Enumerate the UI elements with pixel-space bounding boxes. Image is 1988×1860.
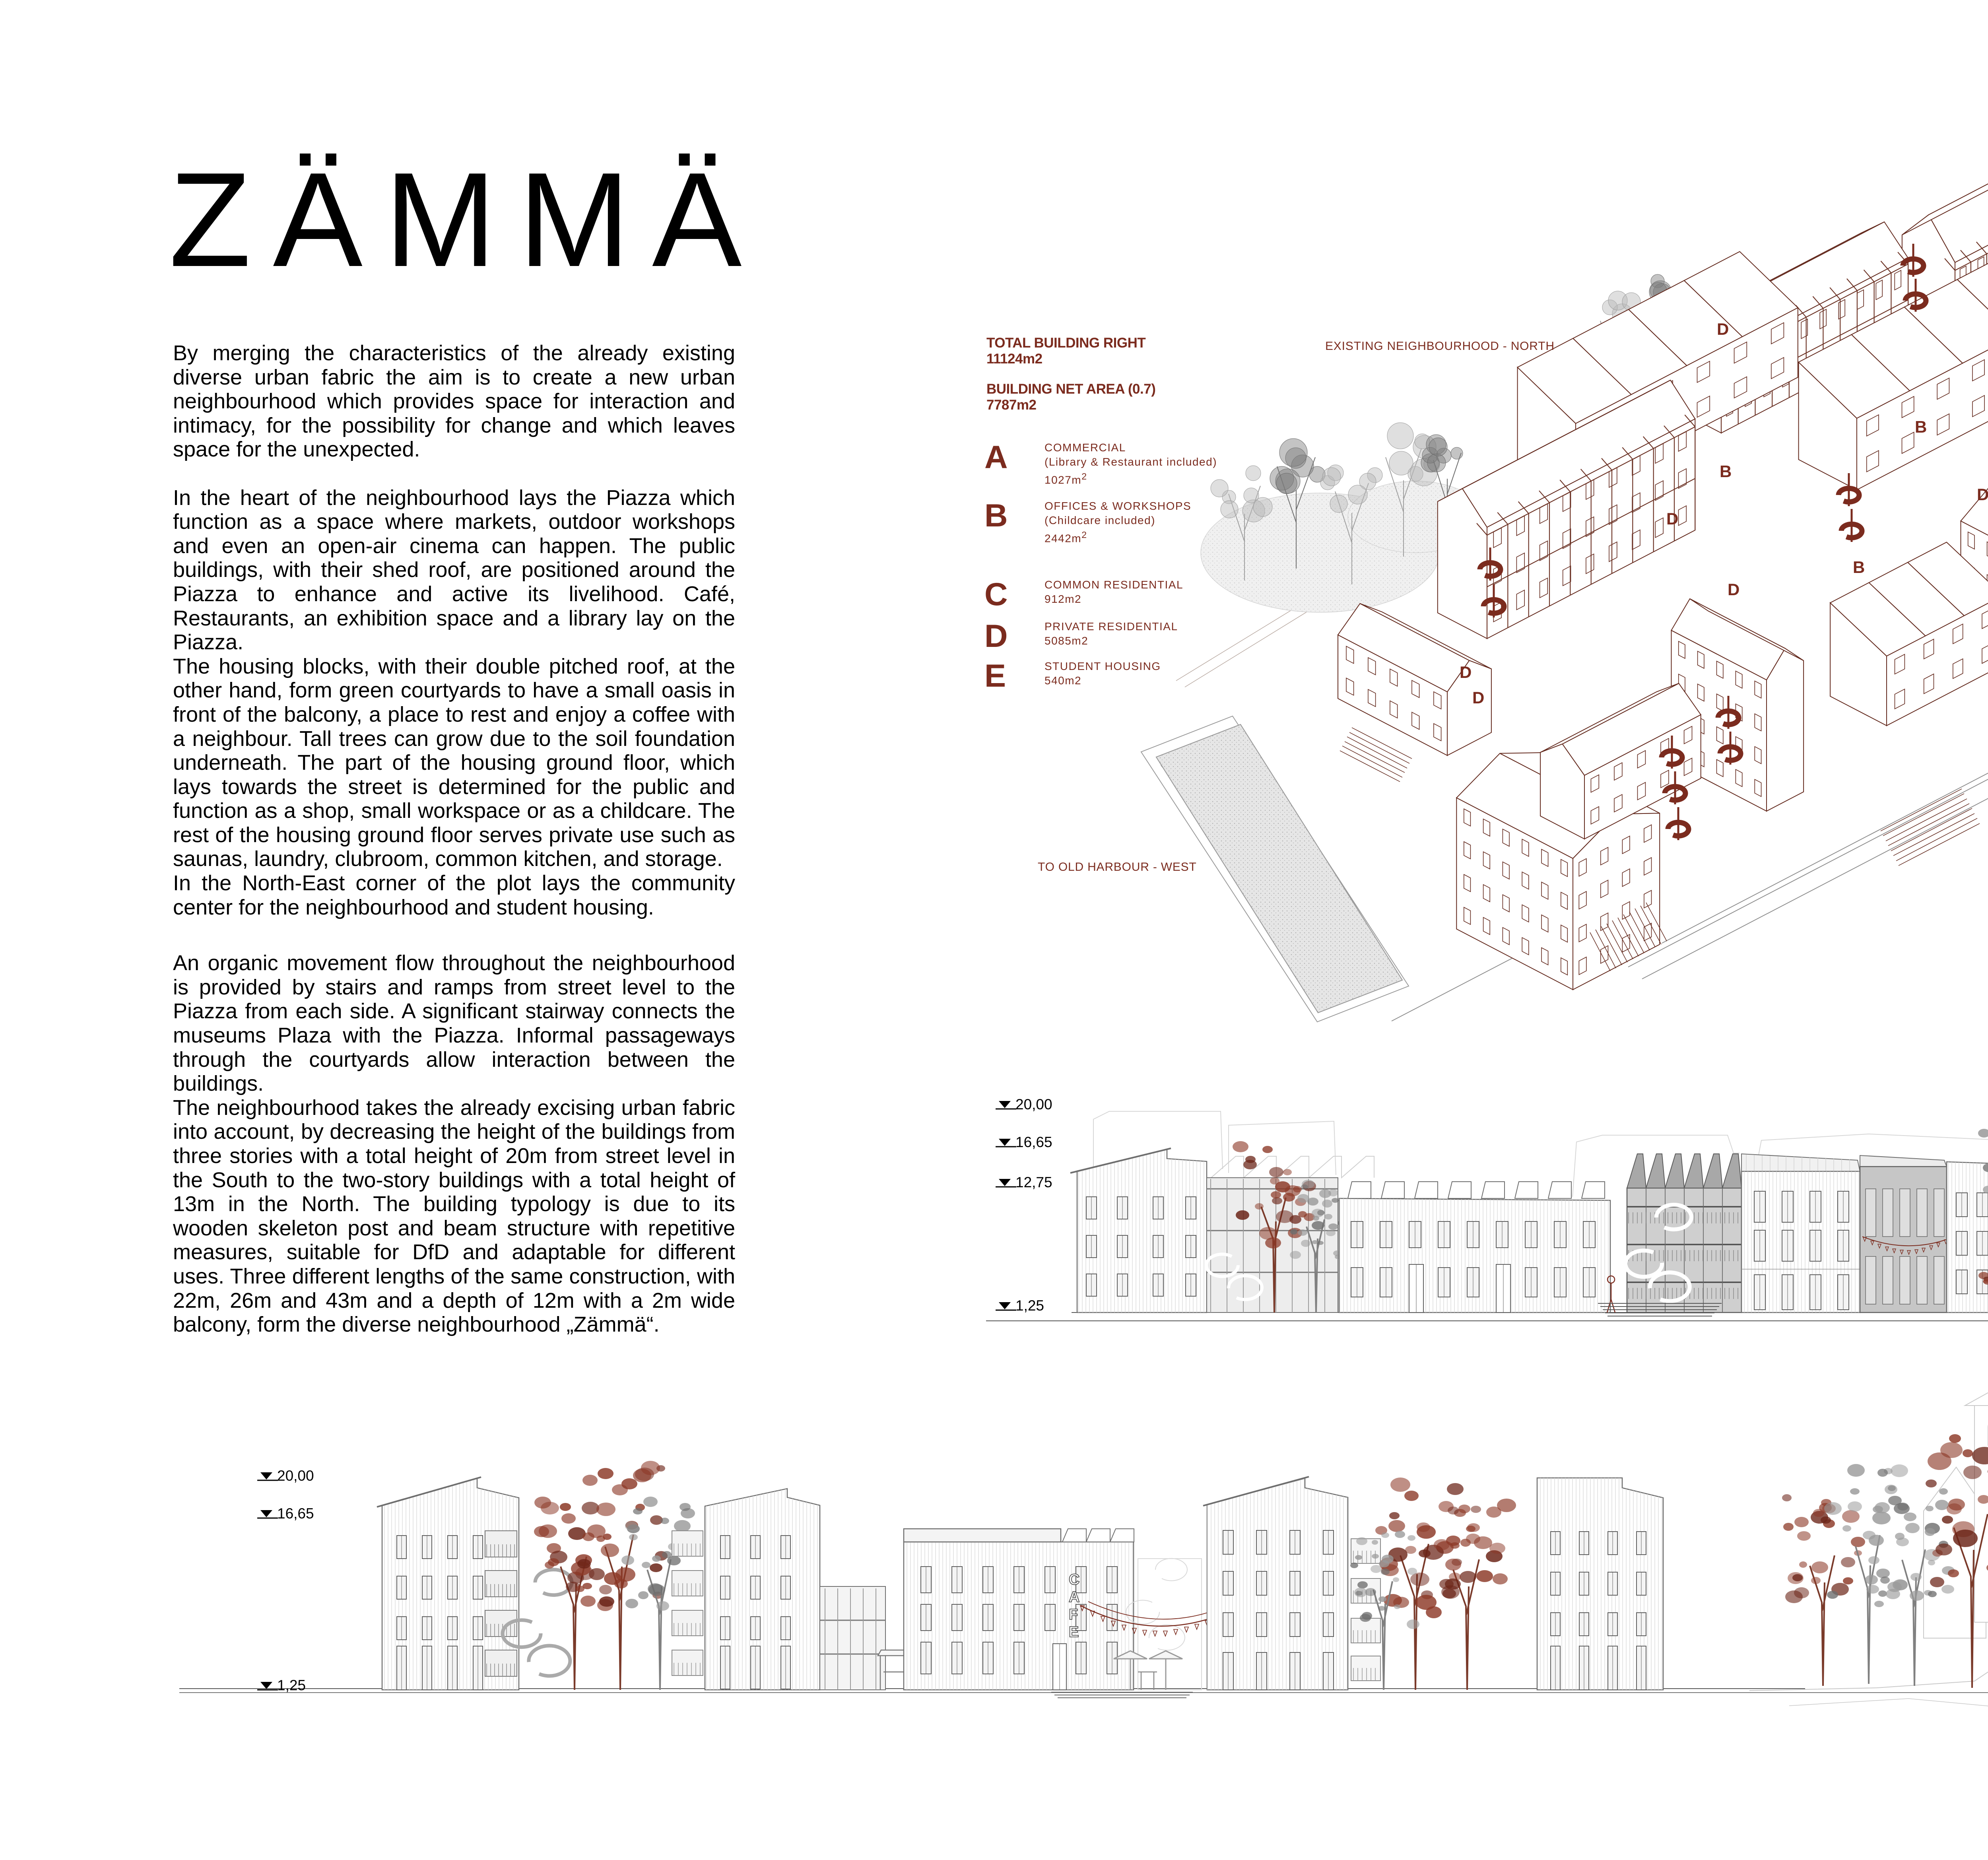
svg-text:D: D	[1472, 688, 1484, 707]
svg-text:B: B	[1720, 462, 1732, 481]
svg-text:D: D	[1977, 485, 1988, 504]
svg-text:20,00: 20,00	[277, 1468, 314, 1484]
svg-text:A: A	[1069, 1589, 1079, 1606]
svg-text:E: E	[1069, 1624, 1079, 1641]
svg-text:12,75: 12,75	[1015, 1174, 1052, 1190]
svg-text:16,65: 16,65	[1015, 1134, 1052, 1150]
svg-text:C: C	[1069, 1571, 1079, 1588]
svg-text:16,65: 16,65	[277, 1505, 314, 1522]
svg-text:EXISTING NEIGHBOURHOOD - NORTH: EXISTING NEIGHBOURHOOD - NORTH	[1325, 340, 1555, 353]
svg-text:D: D	[1728, 580, 1739, 599]
svg-text:D: D	[1717, 320, 1729, 338]
svg-text:1,25: 1,25	[1015, 1297, 1044, 1314]
svg-text:TO OLD HARBOUR - WEST: TO OLD HARBOUR - WEST	[1038, 860, 1197, 874]
svg-text:B: B	[1915, 417, 1927, 436]
svg-text:F: F	[1069, 1606, 1078, 1623]
svg-text:D: D	[1666, 509, 1678, 528]
svg-text:D: D	[1460, 663, 1472, 681]
svg-text:B: B	[1853, 558, 1865, 577]
svg-text:1,25: 1,25	[277, 1677, 306, 1693]
svg-text:20,00: 20,00	[1015, 1096, 1052, 1113]
